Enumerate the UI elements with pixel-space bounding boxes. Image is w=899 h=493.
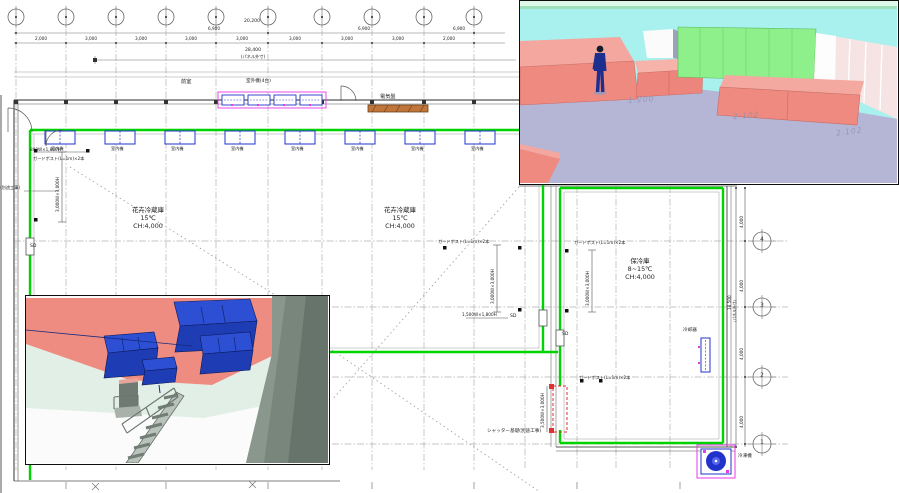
room-label-cool-room: 保冷庫 8~15℃ CH:4,000 — [608, 257, 672, 281]
dim-chain: 3,000 — [284, 37, 306, 41]
guard-post-label: ガードポスト(L=1m)×2本 — [574, 241, 625, 245]
indoor-unit-label: 室内機 — [471, 147, 484, 151]
grid-bubble-1: 1 — [756, 440, 768, 446]
dim-span: 6,900 — [448, 27, 470, 31]
grid-bubble-2: 2 — [756, 373, 768, 379]
opening-size-label: 1,500W×1,800H — [462, 313, 497, 317]
dim-chain: 3,000 — [180, 37, 202, 41]
indoor-unit-label: 室内機 — [411, 147, 424, 151]
dim-chain: 2,000 — [30, 37, 52, 41]
dim-chain: 3,000 — [336, 37, 358, 41]
cooler-label: 冷却器 — [683, 329, 697, 334]
render-view-ceiling-units[interactable] — [25, 295, 330, 465]
grid-bubbles-right — [748, 229, 776, 456]
dim-span: 6,900 — [203, 27, 225, 31]
dim-total-top-note: (パネル外寸) — [233, 55, 273, 59]
dim-chain: 3,000 — [130, 37, 152, 41]
freezer-unit[interactable] — [697, 445, 735, 478]
freezer-label: 冷凍機 — [738, 455, 752, 460]
sd-door-label: SD — [510, 315, 516, 320]
room-label-flower-cold-storage-1: 花卉冷蔵庫 15℃ CH:4,000 — [116, 206, 180, 230]
dim-right: 4,000 — [740, 416, 744, 428]
guard-post-label: ガードポスト(L=1m)×2本 — [33, 157, 84, 161]
shutter-base-label: シャッター基礎(別途工事) — [487, 430, 541, 435]
indoor-unit-label: 室内機 — [231, 147, 244, 151]
dim-span-upper: 20,200 — [238, 20, 266, 25]
indoor-unit-label: 室内機 — [351, 147, 364, 151]
cooler-unit[interactable] — [698, 338, 710, 372]
indoor-units[interactable] — [45, 131, 495, 144]
electrical-panel[interactable] — [368, 105, 428, 112]
separate-work-label: (別途工事) — [0, 186, 20, 190]
dim-right: 4,000 — [740, 280, 744, 292]
shutter-size-vertical: 3,500W×3,000H — [541, 393, 545, 428]
indoor-unit-label: 室内機 — [291, 147, 304, 151]
render-green-panel — [678, 27, 816, 81]
render-view-interior[interactable]: 1.200 2.102 2.102 — [519, 0, 899, 185]
shutter-opening[interactable] — [549, 384, 567, 433]
grid-bubble-3: 3 — [756, 303, 768, 309]
opening-size-vertical: 3,000W×3,000H — [56, 177, 60, 212]
anteroom-label: 前室 — [181, 80, 191, 85]
sd-door-label: SD — [562, 333, 568, 338]
outdoor-units-label: 室外機(4台) — [246, 80, 271, 85]
dim-span: 6,900 — [353, 27, 375, 31]
indoor-unit-label: 室内機 — [171, 147, 184, 151]
dim-chain: 3,000 — [231, 37, 253, 41]
dim-right-total-note: (パネル外寸) — [733, 300, 737, 322]
opening-size-vertical: 3,000W×3,000H — [586, 271, 590, 306]
grid-bubble-4: 4 — [756, 237, 768, 243]
dim-chain: 3,000 — [80, 37, 102, 41]
render-interior-art — [520, 1, 897, 183]
dim-right: 4,000 — [740, 216, 744, 228]
door-size-label: 800W×1,800H — [30, 148, 61, 152]
cad-floorplan-workspace[interactable]: 前室 室外機(4台) 電気盤 室内機 室内機 室内機 室内機 室内機 室内機 室… — [0, 0, 899, 493]
floor-ghost-text: 1.200 — [628, 94, 655, 104]
survey-marks — [66, 481, 680, 490]
dim-right: 4,000 — [740, 348, 744, 360]
dim-chain: 3,000 — [387, 37, 409, 41]
opening-size-vertical: 3,000W×3,000H — [491, 269, 495, 304]
indoor-unit-label: 室内機 — [111, 147, 124, 151]
render-ceiling-art — [26, 296, 328, 463]
guard-post-label: ガードポスト(L=1m)×2本 — [579, 376, 630, 380]
room-label-flower-cold-storage-2: 花卉冷蔵庫 15℃ CH:4,000 — [368, 206, 432, 230]
dim-chain: 2,000 — [438, 37, 460, 41]
sd-door-label: SD — [30, 245, 36, 250]
electrical-panel-label: 電気盤 — [380, 95, 396, 100]
guard-post-label: ガードポスト(L=1m)×2本 — [438, 240, 489, 244]
